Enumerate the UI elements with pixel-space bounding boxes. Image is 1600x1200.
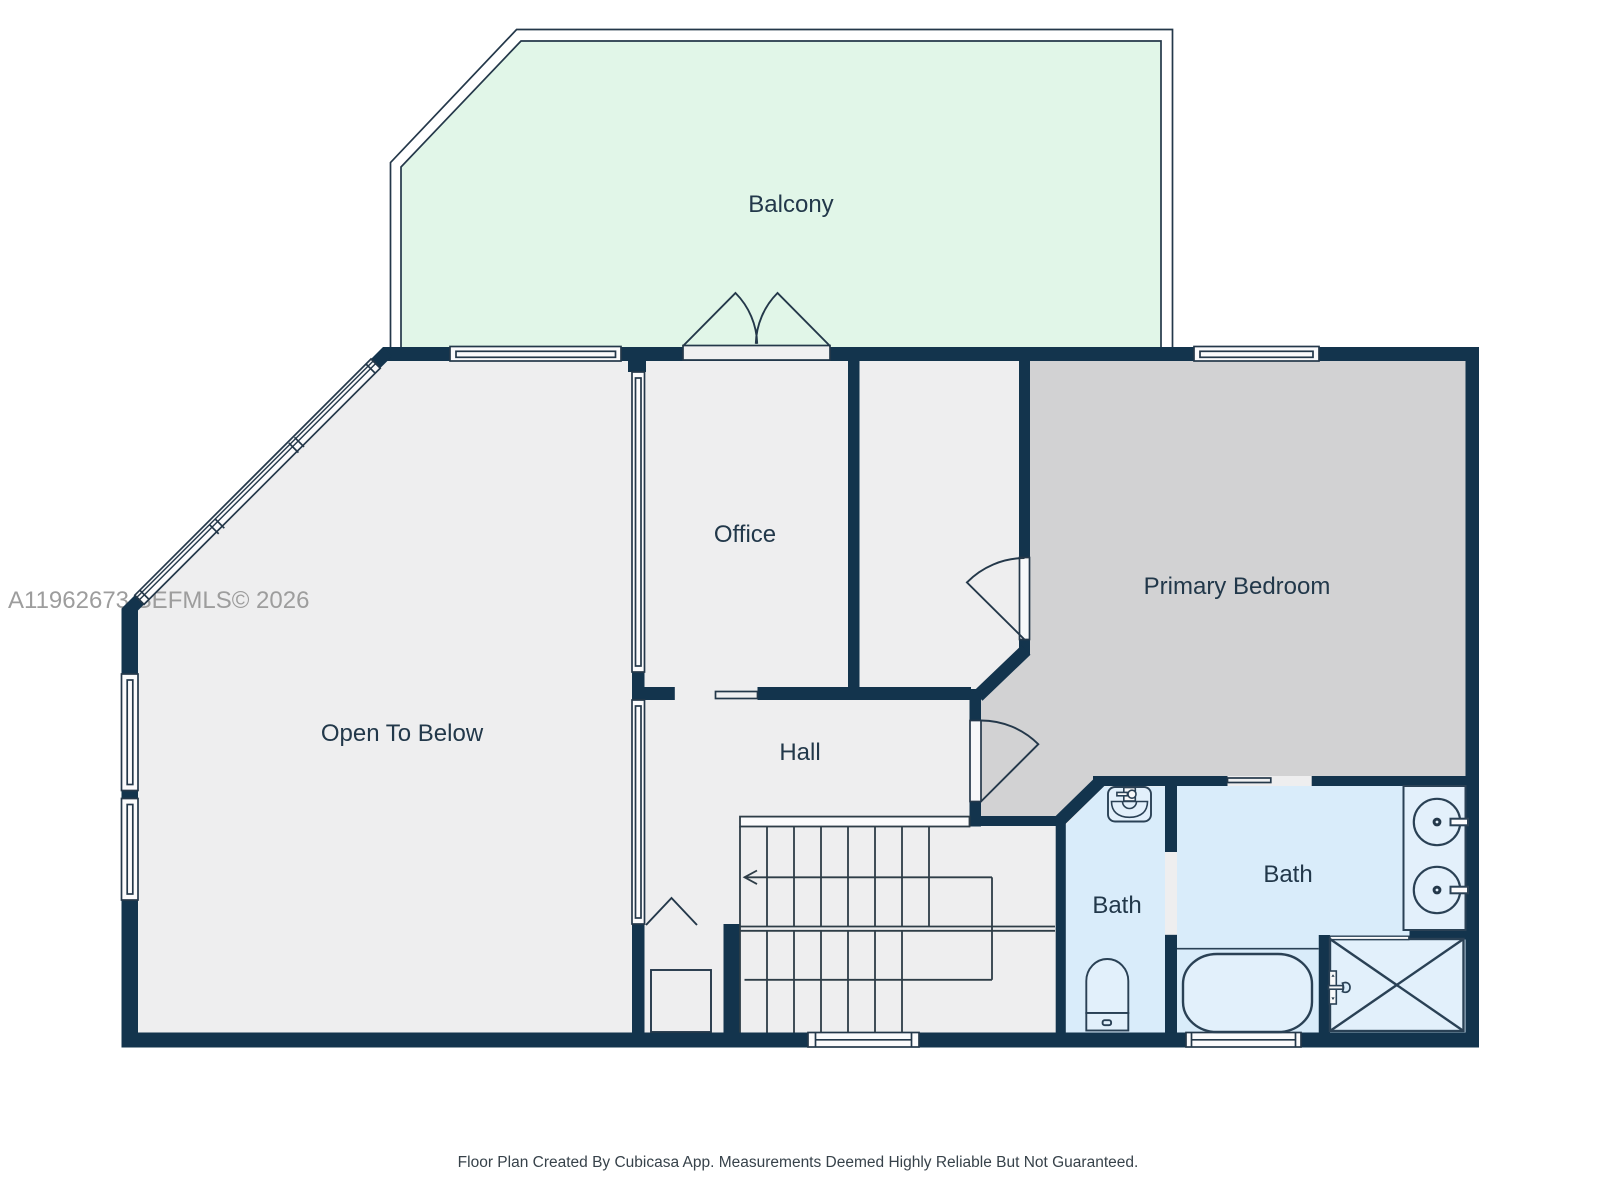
svg-text:A11962673 SEFMLS© 2026: A11962673 SEFMLS© 2026 bbox=[8, 587, 309, 614]
svg-text:Floor Plan Created By Cubicasa: Floor Plan Created By Cubicasa App. Meas… bbox=[458, 1154, 1139, 1171]
svg-text:Primary Bedroom: Primary Bedroom bbox=[1144, 573, 1331, 600]
svg-text:Open To Below: Open To Below bbox=[321, 720, 484, 747]
svg-text:Bath: Bath bbox=[1092, 892, 1141, 919]
svg-text:Hall: Hall bbox=[779, 739, 820, 766]
svg-text:Office: Office bbox=[714, 521, 776, 548]
svg-text:Bath: Bath bbox=[1263, 861, 1312, 888]
svg-text:Balcony: Balcony bbox=[748, 191, 833, 218]
